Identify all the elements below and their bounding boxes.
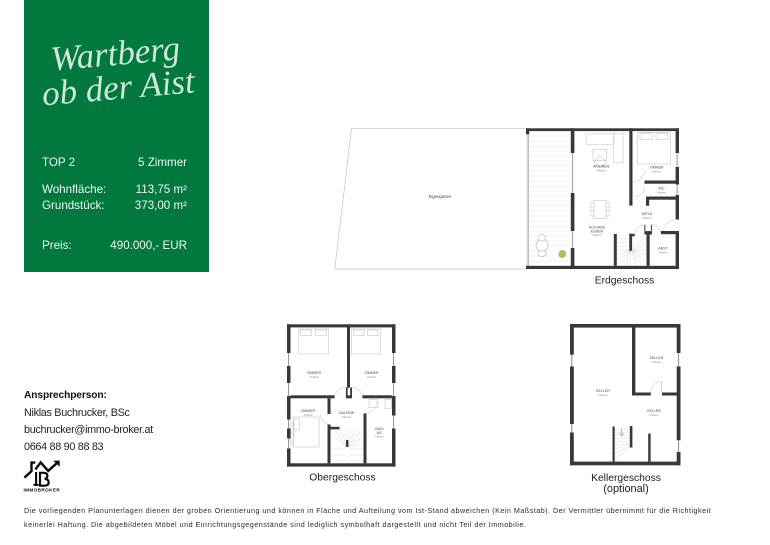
svg-text:Fliesen: Fliesen bbox=[649, 413, 658, 417]
svg-text:Parkett: Parkett bbox=[342, 415, 351, 419]
svg-text:Fliesen: Fliesen bbox=[598, 393, 607, 397]
svg-text:Parkett: Parkett bbox=[304, 413, 313, 417]
svg-text:Parkett: Parkett bbox=[643, 216, 652, 220]
svg-text:Parkett: Parkett bbox=[597, 169, 606, 173]
svg-text:(optional): (optional) bbox=[603, 483, 648, 495]
svg-text:Fliesen: Fliesen bbox=[657, 191, 666, 195]
svg-text:Erdgeschoss: Erdgeschoss bbox=[595, 276, 655, 287]
svg-text:Parkett: Parkett bbox=[367, 375, 376, 379]
svg-text:Parkett: Parkett bbox=[593, 233, 602, 237]
svg-text:Fliesen: Fliesen bbox=[652, 360, 661, 364]
svg-text:Fliesen: Fliesen bbox=[658, 251, 667, 255]
svg-text:Obergeschoss: Obergeschoss bbox=[309, 473, 375, 484]
svg-text:Eigengarten: Eigengarten bbox=[429, 194, 452, 199]
svg-text:Fliesen: Fliesen bbox=[375, 435, 384, 439]
svg-text:Fliesen: Fliesen bbox=[652, 170, 661, 174]
svg-text:Parkett: Parkett bbox=[310, 375, 319, 379]
